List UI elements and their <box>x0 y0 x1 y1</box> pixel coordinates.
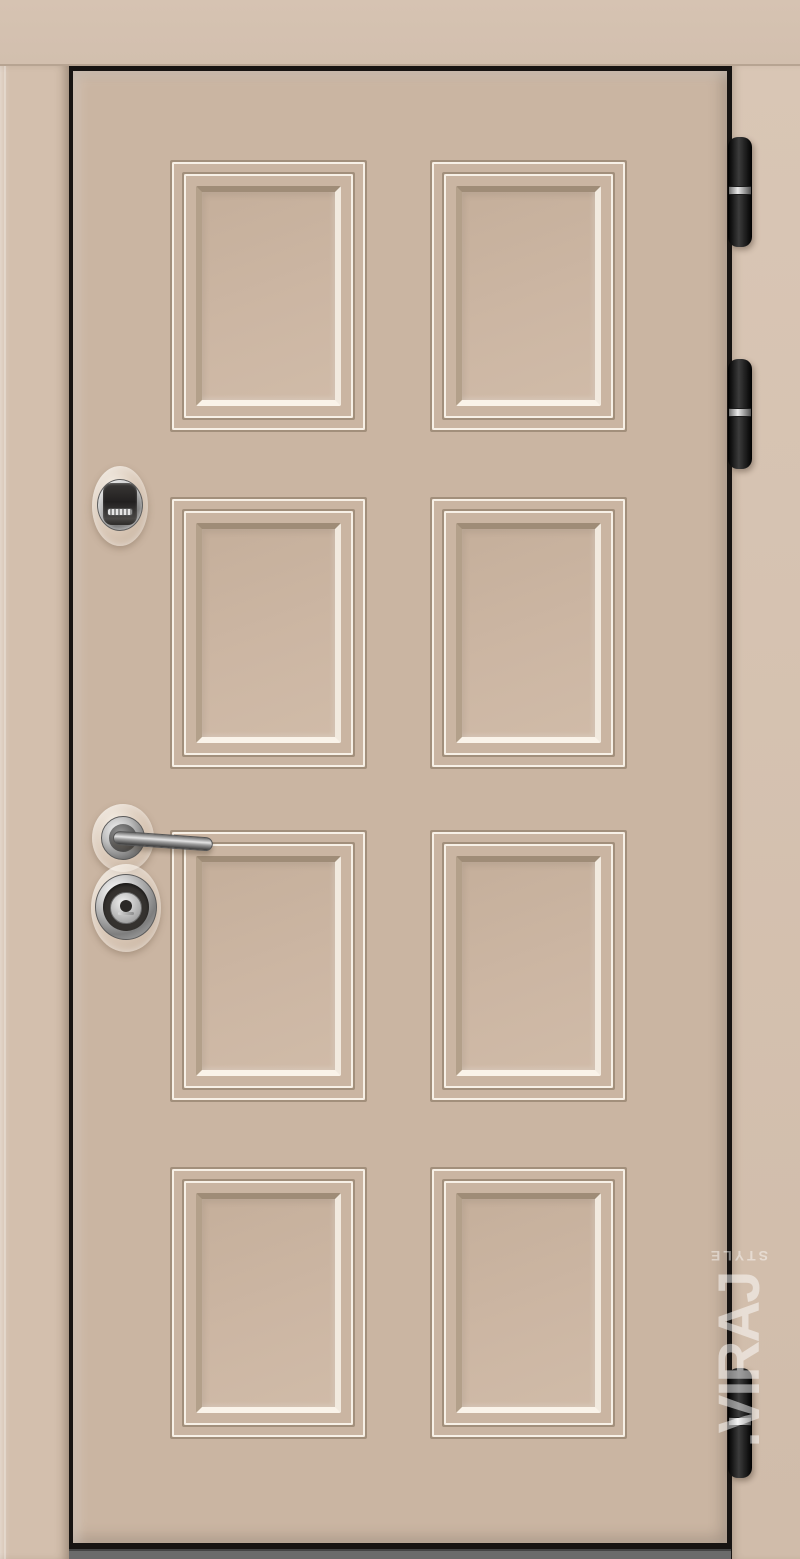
door-product-photo: .VIRAJ STYLE <box>0 0 800 1559</box>
lower-lock-keyhole-icon <box>120 900 132 912</box>
watermark-style-label: STYLE <box>710 1248 768 1264</box>
hinge-chrome-band <box>729 186 751 195</box>
upper-lock-keyhole-cover-icon <box>107 508 133 516</box>
door-panel-r4-c1 <box>170 1167 367 1439</box>
panel-field <box>196 186 341 406</box>
panel-field <box>456 856 601 1076</box>
panel-field <box>456 186 601 406</box>
door-panel-r3-c2 <box>430 830 627 1102</box>
lower-lock-key-bar <box>118 912 134 915</box>
door-panel-r4-c2 <box>430 1167 627 1439</box>
watermark-brand: .VIRAJ <box>710 1254 770 1466</box>
door-panel-r1-c2 <box>430 160 627 432</box>
door-panel-r3-c1 <box>170 830 367 1102</box>
panel-field <box>456 523 601 743</box>
panel-field <box>196 856 341 1076</box>
hinge-2 <box>728 359 752 469</box>
panel-field <box>196 1193 341 1413</box>
hinge-chrome-band <box>729 408 751 417</box>
door-panel-r1-c1 <box>170 160 367 432</box>
wall-header <box>0 0 800 66</box>
upper-lock-cylinder <box>103 483 137 525</box>
panel-field <box>456 1193 601 1413</box>
door-panel-r2-c1 <box>170 497 367 769</box>
door-panel-r2-c2 <box>430 497 627 769</box>
casing-edge-line <box>4 66 6 1559</box>
door-leaf <box>73 71 727 1543</box>
left-jamb-casing <box>0 66 69 1559</box>
panel-field <box>196 523 341 743</box>
hinge-1 <box>728 137 752 247</box>
threshold <box>69 1549 731 1559</box>
